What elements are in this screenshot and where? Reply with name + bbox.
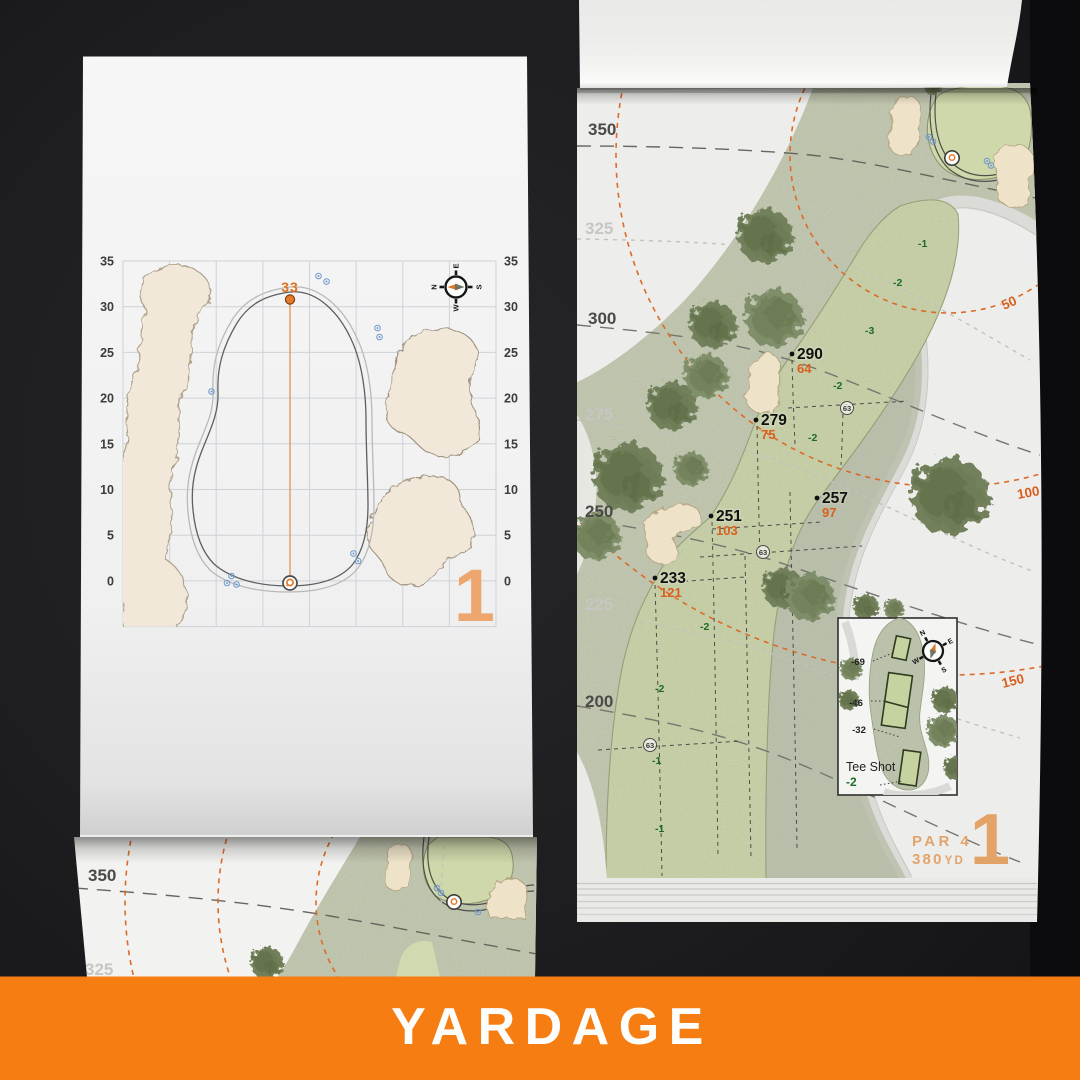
svg-text:97: 97: [822, 505, 836, 520]
svg-text:-46: -46: [849, 698, 863, 709]
svg-text:-1: -1: [918, 238, 927, 250]
svg-text:30: 30: [504, 300, 518, 314]
svg-text:-2: -2: [655, 683, 664, 695]
svg-text:0: 0: [107, 574, 114, 588]
svg-text:325: 325: [85, 960, 113, 979]
svg-text:5: 5: [504, 529, 511, 543]
svg-text:350: 350: [88, 866, 116, 885]
svg-text:5: 5: [107, 529, 114, 543]
svg-text:15: 15: [504, 437, 518, 451]
svg-text:200: 200: [585, 692, 613, 711]
svg-text:25: 25: [504, 346, 518, 360]
svg-text:1: 1: [970, 800, 1010, 880]
svg-text:35: 35: [504, 255, 518, 269]
svg-text:-32: -32: [852, 725, 866, 736]
svg-text:-1: -1: [652, 755, 661, 767]
svg-text:1: 1: [454, 554, 495, 637]
svg-text:350: 350: [588, 120, 616, 139]
svg-text:250: 250: [585, 502, 613, 521]
svg-text:275: 275: [585, 405, 613, 424]
svg-text:30: 30: [100, 300, 114, 314]
svg-text:20: 20: [504, 392, 518, 406]
svg-text:33: 33: [281, 279, 299, 295]
svg-text:Tee Shot: Tee Shot: [846, 760, 896, 774]
svg-text:-69: -69: [851, 657, 865, 668]
svg-text:225: 225: [585, 595, 613, 614]
svg-text:20: 20: [100, 392, 114, 406]
svg-text:35: 35: [100, 255, 114, 269]
svg-text:-2: -2: [846, 775, 857, 789]
svg-text:-3: -3: [865, 325, 874, 337]
svg-text:-2: -2: [893, 277, 902, 289]
svg-text:10: 10: [100, 483, 114, 497]
svg-text:25: 25: [100, 346, 114, 360]
svg-text:10: 10: [504, 483, 518, 497]
svg-text:-2: -2: [808, 432, 817, 444]
svg-text:-2: -2: [700, 621, 709, 633]
svg-text:PAR 4: PAR 4: [912, 833, 972, 850]
svg-text:300: 300: [588, 309, 616, 328]
svg-text:15: 15: [100, 437, 114, 451]
svg-text:63: 63: [646, 741, 654, 750]
svg-text:63: 63: [759, 548, 767, 557]
svg-text:-1: -1: [655, 823, 664, 835]
svg-text:-2: -2: [833, 380, 842, 392]
svg-text:YARDAGE: YARDAGE: [391, 998, 713, 1056]
svg-text:75: 75: [761, 427, 775, 442]
svg-text:325: 325: [585, 219, 613, 238]
svg-text:103: 103: [716, 523, 738, 538]
svg-text:63: 63: [843, 404, 851, 413]
svg-text:121: 121: [660, 585, 682, 600]
svg-text:64: 64: [797, 361, 812, 376]
svg-text:0: 0: [504, 574, 511, 588]
